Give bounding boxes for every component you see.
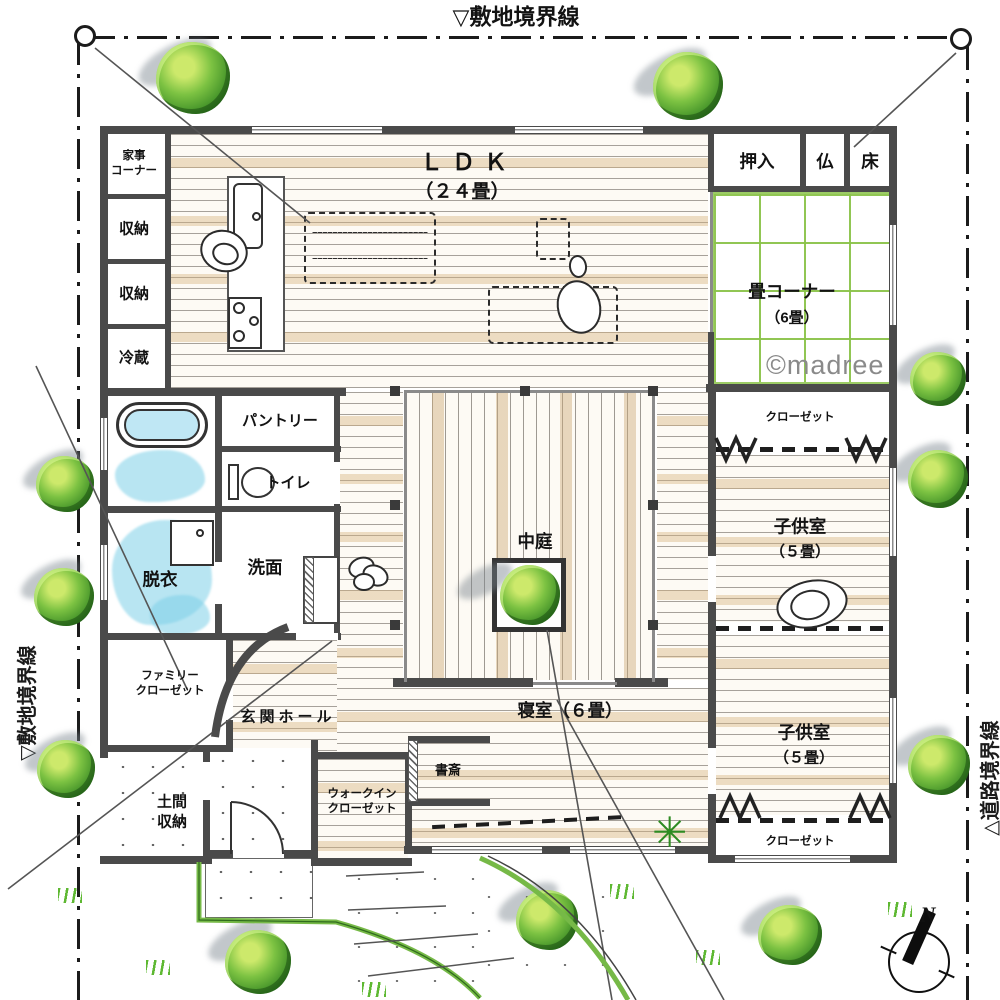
grass-tuft xyxy=(610,884,634,899)
porch-slab xyxy=(205,858,313,918)
burner-icon xyxy=(233,330,245,342)
wall xyxy=(100,856,212,864)
room-label-tatami-size: （6畳） xyxy=(765,308,818,328)
tree xyxy=(37,740,95,798)
wall xyxy=(706,384,897,392)
boundary-label-top: ▽敷地境界線 xyxy=(453,4,580,33)
post xyxy=(648,620,658,630)
study-shelf-wall xyxy=(408,740,418,802)
glass-line xyxy=(404,390,407,682)
room-label-entrance-hall: 玄関ホール xyxy=(240,707,335,727)
water-texture xyxy=(115,450,205,502)
toilet-tank xyxy=(228,464,239,500)
floor-plan: ▽敷地境界線 ▽敷地境界線 △道路境界線 xyxy=(0,0,1000,1000)
tree xyxy=(156,42,230,114)
room-label-family-closet: ファミリー クローゼット xyxy=(136,669,205,699)
grass-tuft xyxy=(58,888,82,903)
post xyxy=(390,620,400,630)
wall xyxy=(100,126,897,134)
room-label-doma-storage: 土間 収納 xyxy=(157,793,187,832)
window xyxy=(735,856,850,862)
room-label-ldk: ＬＤＫ xyxy=(420,148,516,178)
room-label-bedroom: 寝室（６畳） xyxy=(518,700,623,723)
wall xyxy=(100,506,222,513)
wall-opening xyxy=(708,748,716,794)
post xyxy=(520,386,530,396)
doma-storage-floor xyxy=(108,754,203,856)
vanity-counter-hatch xyxy=(304,557,314,623)
faucet-icon xyxy=(252,212,261,221)
burner-icon xyxy=(249,316,259,326)
room-label-dressing: 脱衣 xyxy=(143,569,178,592)
grass-tuft xyxy=(696,950,720,965)
wall-opening xyxy=(708,556,716,602)
washing-machine xyxy=(170,520,214,566)
genkan-doma-floor xyxy=(208,748,312,852)
wall-opening xyxy=(226,682,233,720)
room-label-kids1: 子供室 xyxy=(774,516,827,539)
window xyxy=(432,847,542,853)
window xyxy=(101,545,107,600)
post xyxy=(390,500,400,510)
wall xyxy=(103,324,167,329)
glass-line xyxy=(710,192,713,332)
wall xyxy=(708,132,714,192)
watermark: ©madree xyxy=(766,350,884,381)
tree xyxy=(34,568,94,626)
room-label-kaji-corner: 家事 コーナー xyxy=(111,149,157,179)
window xyxy=(252,127,382,133)
tree xyxy=(225,930,291,994)
wall xyxy=(311,752,412,759)
wall xyxy=(100,388,346,396)
closet-opening-dash xyxy=(716,818,888,823)
room-label-storage1: 収納 xyxy=(119,219,149,239)
site-boundary-top-line xyxy=(85,36,962,39)
road-boundary-right-line xyxy=(966,40,969,1000)
dining-table-line xyxy=(312,232,428,233)
tree xyxy=(653,52,723,120)
tree xyxy=(758,905,822,965)
burner-icon xyxy=(233,302,245,314)
room-label-oshiire: 押入 xyxy=(740,151,775,174)
wall-opening xyxy=(334,462,340,504)
window xyxy=(890,225,896,325)
tree xyxy=(516,890,578,950)
window xyxy=(515,127,643,133)
compass-north-label: N xyxy=(920,901,935,928)
window xyxy=(890,698,896,783)
wall xyxy=(100,745,233,752)
courtyard-tree xyxy=(500,565,560,625)
tree xyxy=(908,450,968,508)
post xyxy=(648,386,658,396)
hall-floor xyxy=(232,640,337,752)
room-label-walkin-closet: ウォークイン クローゼット xyxy=(328,787,397,817)
room-label-ldk-size: （２４畳） xyxy=(414,181,509,206)
side-table-dashed xyxy=(536,218,570,260)
room-label-kids1-size: （５畳） xyxy=(770,542,830,562)
boundary-corner-marker xyxy=(950,28,972,50)
water-texture xyxy=(150,595,210,635)
wall xyxy=(215,392,222,513)
room-label-pantry: パントリー xyxy=(242,411,318,431)
room-label-butsudan: 仏 xyxy=(816,151,834,174)
approach-path xyxy=(340,862,490,994)
window xyxy=(101,418,107,470)
wall xyxy=(844,134,850,190)
wall xyxy=(222,506,341,512)
boundary-corner-marker xyxy=(74,25,96,47)
tree xyxy=(910,352,966,406)
room-label-washroom: 洗面 xyxy=(248,557,283,580)
boundary-label-right: △道路境界線 xyxy=(974,683,1000,873)
post xyxy=(648,500,658,510)
wall xyxy=(284,850,313,858)
glass-line xyxy=(533,682,617,685)
tree xyxy=(36,456,94,512)
room-label-closet-north: クローゼット xyxy=(766,411,835,426)
grass-tuft xyxy=(362,982,386,997)
wall-opening xyxy=(296,633,338,640)
wall xyxy=(708,332,714,392)
post xyxy=(390,386,400,396)
plant-sketch xyxy=(353,573,375,591)
dining-table-dashed xyxy=(304,212,436,284)
room-label-fridge: 冷蔵 xyxy=(119,348,149,368)
courtyard-south-wall xyxy=(615,678,668,687)
plant-star-icon: ✳ xyxy=(652,812,687,854)
tree xyxy=(908,735,970,795)
wall xyxy=(222,446,341,452)
closet-opening-dash xyxy=(716,447,888,452)
room-label-kids2: 子供室 xyxy=(778,722,831,745)
room-label-tokonoma: 床 xyxy=(861,151,879,174)
glass-line xyxy=(652,390,655,682)
wall xyxy=(315,858,412,866)
wall xyxy=(408,736,490,743)
compass: N xyxy=(888,905,978,1000)
room-label-kids2-size: （５畳） xyxy=(774,748,834,768)
dining-table-line xyxy=(312,258,428,259)
bathtub-inner xyxy=(124,409,200,441)
wall-opening xyxy=(203,762,210,800)
room-label-toilet: トイレ xyxy=(265,473,310,493)
courtyard-south-wall xyxy=(393,678,533,687)
wall xyxy=(103,259,167,264)
wall xyxy=(408,799,490,806)
room-label-tatami: 畳コーナー xyxy=(748,281,836,304)
wall xyxy=(800,134,806,190)
room-label-closet-south: クローゼット xyxy=(766,835,835,850)
grass-tuft xyxy=(146,960,170,975)
wall xyxy=(103,194,167,199)
washer-dial-icon xyxy=(196,529,204,537)
site-boundary-left-line xyxy=(77,35,80,1000)
window xyxy=(890,468,896,556)
wall xyxy=(206,850,233,858)
corridor-floor xyxy=(337,392,403,690)
room-label-study: 書斎 xyxy=(435,763,461,780)
engawa-floor xyxy=(657,392,708,680)
room-label-courtyard: 中庭 xyxy=(518,531,553,554)
room-label-storage2: 収納 xyxy=(119,284,149,304)
wall-opening xyxy=(215,562,222,604)
